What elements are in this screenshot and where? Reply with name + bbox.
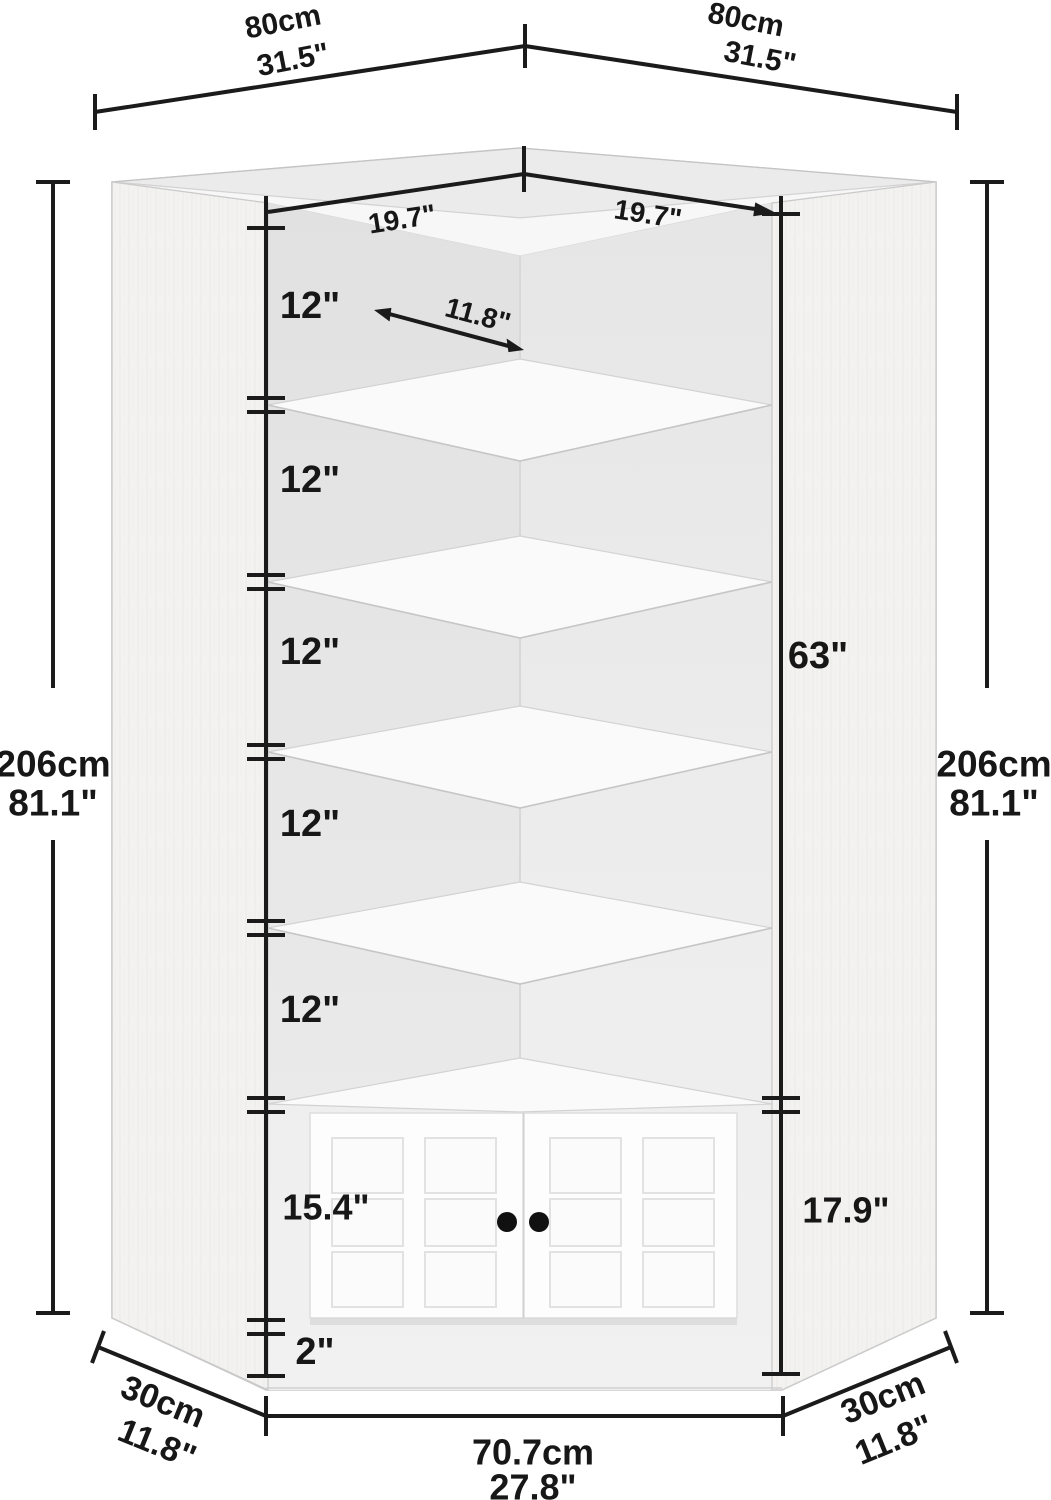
- door-panel: [550, 1252, 621, 1307]
- door-panel: [550, 1138, 621, 1193]
- dim-label-shelf-1: 12": [280, 285, 340, 327]
- dim-label-top-right-in: 31.5": [721, 35, 799, 81]
- door-panel: [425, 1138, 496, 1193]
- dim-label-base: 2": [295, 1331, 334, 1373]
- cabinet-left-side-panel: [112, 182, 268, 1390]
- door-panel: [332, 1138, 403, 1193]
- dim-label-interior-height: 63": [788, 635, 848, 677]
- dim-label-front-width-in: 27.8": [489, 1467, 576, 1500]
- dim-label-cabinet-left: 15.4": [282, 1187, 369, 1228]
- dim-label-shelf-2: 12": [280, 459, 340, 501]
- dim-label-top-right-cm: 80cm: [705, 0, 787, 44]
- dim-label-total-left-cm: 206cm: [0, 744, 111, 785]
- door-panel: [643, 1138, 714, 1193]
- door-bottom-shadow: [310, 1318, 737, 1325]
- door-panel: [550, 1199, 621, 1246]
- door-panel: [643, 1199, 714, 1246]
- door-panel: [425, 1199, 496, 1246]
- door-panel: [425, 1252, 496, 1307]
- door-panel: [332, 1252, 403, 1307]
- dimension-diagram: 80cm 31.5" 80cm 31.5" 19.7" 19.7" 11.8" …: [0, 0, 1051, 1500]
- dim-label-total-right-cm: 206cm: [936, 744, 1051, 785]
- door-knob-right: [529, 1212, 549, 1232]
- dim-label-cabinet-right: 17.9": [802, 1190, 889, 1231]
- dim-label-shelf-4: 12": [280, 803, 340, 845]
- dim-label-shelf-3: 12": [280, 631, 340, 673]
- dim-label-total-right-in: 81.1": [949, 783, 1039, 824]
- door-knob-left: [497, 1212, 517, 1232]
- diagram-canvas: 80cm 31.5" 80cm 31.5" 19.7" 19.7" 11.8" …: [0, 0, 1051, 1500]
- dim-label-shelf-5: 12": [280, 989, 340, 1031]
- door-panel: [643, 1252, 714, 1307]
- dim-label-total-left-in: 81.1": [8, 783, 98, 824]
